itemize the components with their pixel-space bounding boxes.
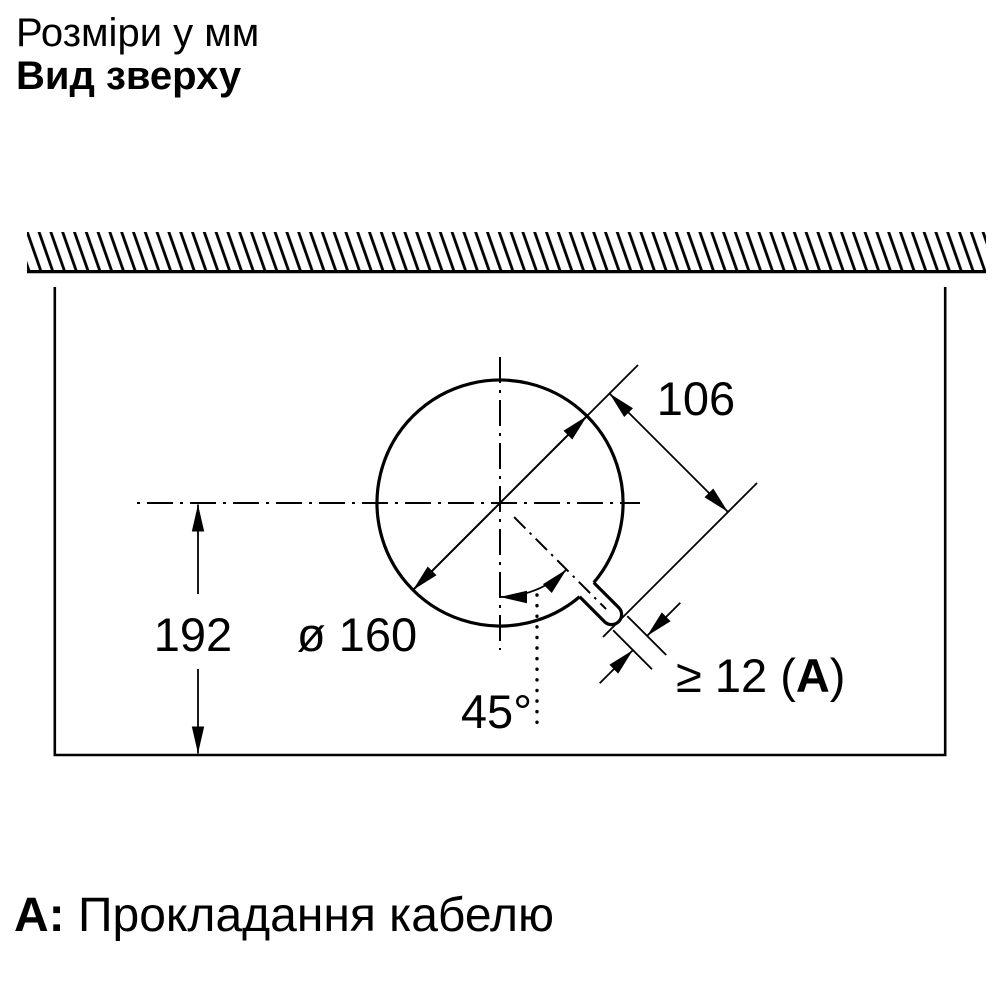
- label-slot-angle: 45°: [461, 685, 532, 738]
- legend: A: Прокладання кабелю: [14, 888, 554, 944]
- label-center-to-front: 192: [154, 608, 232, 661]
- label-slot-width: ≥ 12 (A): [676, 649, 845, 702]
- dim-106-extension-lower: [603, 483, 757, 637]
- label-cutout-diameter: ø 160: [297, 608, 417, 661]
- legend-key: A:: [14, 889, 65, 942]
- installation-drawing: 106 192 ø 160 ≥ 12 (A) 45°: [0, 0, 1000, 1000]
- dim-12-arrow-upper: [647, 603, 680, 636]
- slot-center-line: [514, 517, 606, 609]
- dim-12-arrow-lower: [600, 650, 633, 683]
- label-slot-distance: 106: [657, 372, 735, 425]
- legend-description: Прокладання кабелю: [78, 889, 554, 942]
- dim-106-extension-upper: [576, 365, 638, 427]
- wall-hatching: [27, 232, 986, 270]
- angle-arc: [500, 569, 566, 597]
- diagram-page: Розміри у мм Вид зверху: [0, 0, 1000, 1000]
